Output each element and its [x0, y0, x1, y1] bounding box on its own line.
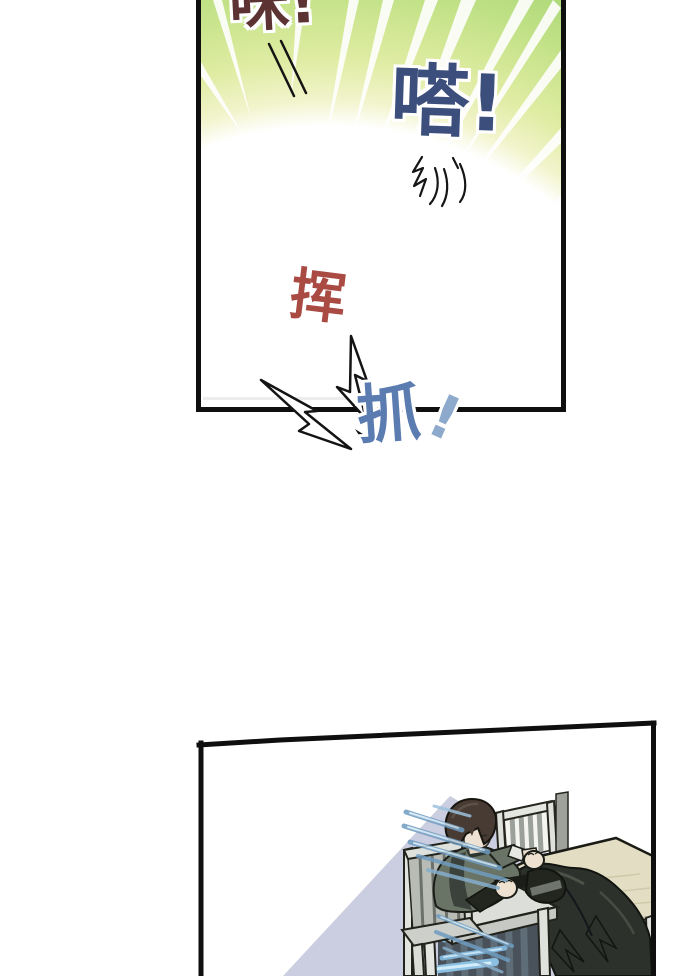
comic-page: 咪! 嗒! 挥 抓!: [0, 0, 700, 976]
panel-bottom-scene: [0, 0, 700, 976]
wall-strip: [556, 792, 568, 858]
sfx-grab-char: 抓: [355, 381, 423, 449]
sfx-grab: 抓!: [357, 383, 448, 447]
